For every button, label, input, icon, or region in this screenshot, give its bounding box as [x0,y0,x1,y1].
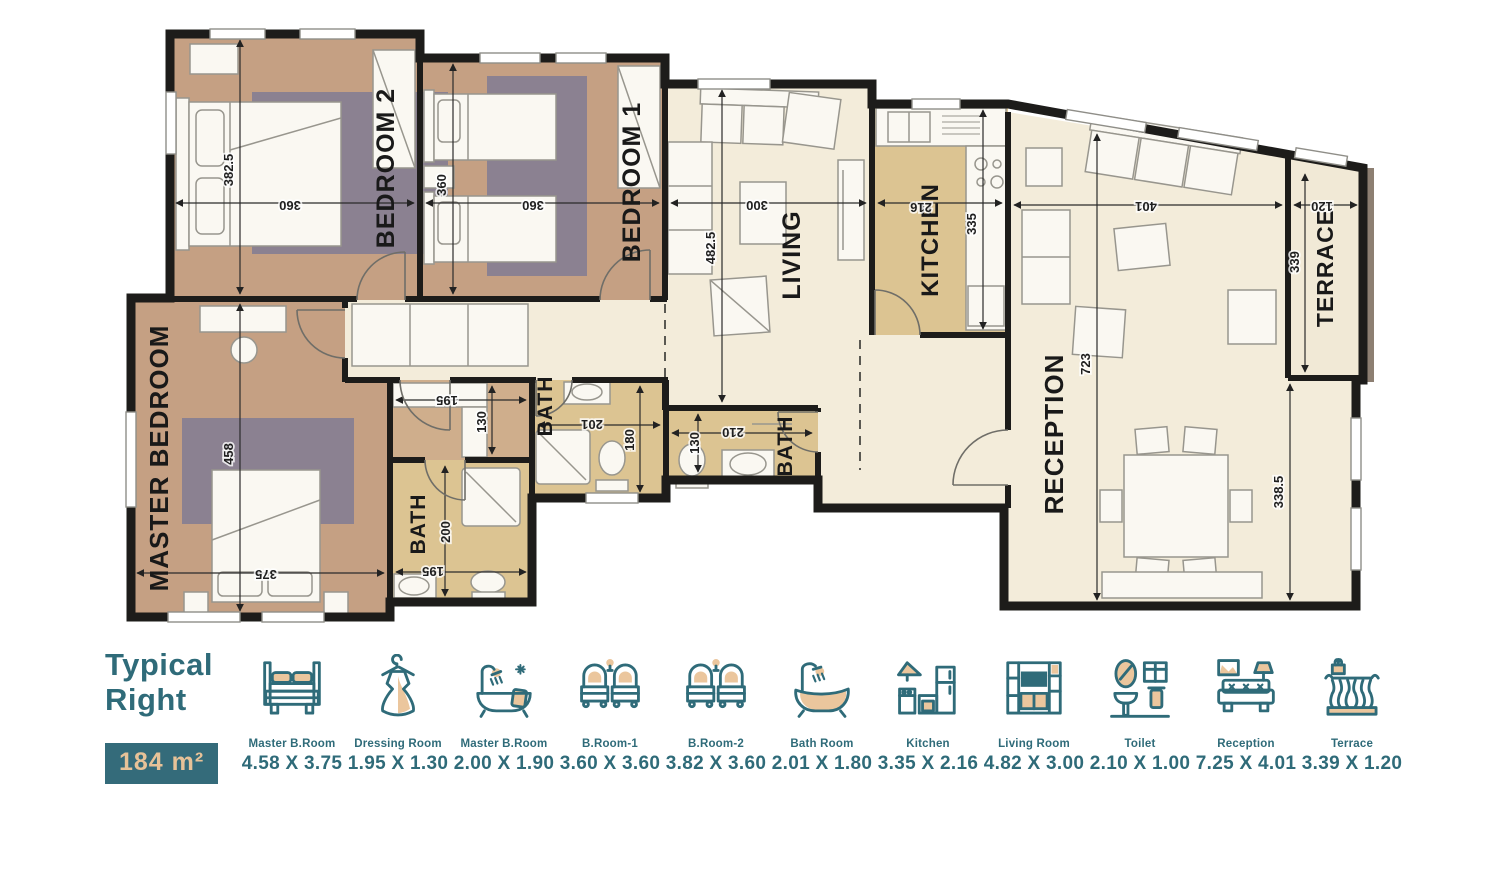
legend-name: B.Room-1 [557,738,663,750]
legend-item-bathroom: Bath Room 2.01 X 1.80 [769,640,875,775]
dress-icon [345,640,451,724]
dim-label: 375 [255,567,277,582]
legend-name: Living Room [981,738,1087,750]
dim-label: 335 [964,213,979,235]
legend-item-living: Living Room 4.82 X 3.00 [981,640,1087,775]
legend-size: 4.58 X 3.75 [239,753,345,775]
dim-label: 339 [1287,251,1302,273]
legend-size: 4.82 X 3.00 [981,753,1087,775]
legend-name: Kitchen [875,738,981,750]
legend-size: 3.39 X 1.20 [1299,753,1405,775]
legend-name: Terrace [1299,738,1405,750]
bathtub-shower-icon [451,640,557,724]
dim-label: 458 [221,443,236,465]
page-title-line1: Typical [105,648,237,683]
room-label-bath1: BATH [534,376,557,437]
legend-item-terrace: Terrace 3.39 X 1.20 [1299,640,1405,775]
room-label-master-bedroom: MASTER BEDROOM [144,325,174,592]
dim-label: 360 [279,198,301,213]
legend-name: Bath Room [769,738,875,750]
dim-label: 482.5 [703,232,718,265]
terrace-icon [1299,640,1405,724]
room-label-bedroom2: BEDROOM 2 [372,88,400,248]
kitchen-icon [875,640,981,724]
dim-label: 195 [422,564,444,579]
vanity-icon [1087,640,1193,724]
sofa-icon [1193,640,1299,724]
dim-label: 180 [622,429,637,451]
room-label-reception: RECEPTION [1039,354,1069,515]
legend-item-master-bedroom: Master B.Room 4.58 X 3.75 [239,640,345,775]
dim-label: 401 [1135,199,1157,214]
sink-bath2 [722,450,774,478]
stool-master [231,337,257,363]
twin-beds-icon [663,640,769,724]
dim-label: 382.5 [221,154,236,187]
legend-size: 2.01 X 1.80 [769,753,875,775]
dim-label: 360 [434,174,449,196]
armchair-reception-1 [1072,306,1125,357]
legend-name: Toilet [1087,738,1193,750]
legend-item-reception: Reception 7.25 X 4.01 [1193,640,1299,775]
sofa-living [699,88,841,149]
legend-item-dressing: Dressing Room 1.95 X 1.30 [345,640,451,775]
dim-label: 120 [1311,199,1333,214]
dim-label: 201 [581,417,603,432]
kitchen-counter-top [876,108,1006,146]
tv-unit-living [838,160,864,260]
legend-item-kitchen: Kitchen 3.35 X 2.16 [875,640,981,775]
hall-closet [352,304,528,366]
bathtub-icon [769,640,875,724]
room-label-bedroom1: BEDROOM 1 [618,102,646,262]
area-badge: 184 m² [105,743,218,784]
legend-size: 2.00 X 1.90 [451,753,557,775]
footer: Typical Right 184 m² Master B.Room 4.58 … [0,630,1500,876]
dim-label: 338.5 [1271,476,1286,509]
dresser-master [200,306,286,332]
legend-item-broom2: B.Room-2 3.82 X 3.60 [663,640,769,775]
dim-label: 130 [687,432,702,454]
legend-size: 1.95 X 1.30 [345,753,451,775]
dim-label: 195 [436,393,458,408]
legend-name: Dressing Room [345,738,451,750]
armchair-reception-2 [1228,290,1276,344]
double-bed-icon [239,640,345,724]
room-label-terrace: TERRACE [1312,209,1338,327]
shower-master [462,468,520,526]
dim-label: 300 [746,198,768,213]
dim-label: 723 [1078,353,1093,375]
coffee-table-reception [1114,223,1170,270]
room-label-master-bath: BATH [407,494,430,555]
floor-plan-svg: BEDROOM 2 BEDROOM 1 LIVING KITCHEN RECEP… [0,0,1500,630]
legend-size: 2.10 X 1.00 [1087,753,1193,775]
twin-bed-1 [424,90,556,162]
legend-name: B.Room-2 [663,738,769,750]
sideboard-reception [1102,572,1262,598]
bed-double-bedroom2 [176,98,341,250]
legend-size: 7.25 X 4.01 [1193,753,1299,775]
toilet-master [471,571,505,601]
dim-label: 200 [438,521,453,543]
kitchen-counter-right [966,146,1006,330]
dim-label: 216 [910,200,932,215]
dim-label: 130 [474,411,489,433]
legend-item-master-bath: Master B.Room 2.00 X 1.90 [451,640,557,775]
title-block: Typical Right 184 m² [105,630,237,784]
page-title-line2: Right [105,683,237,718]
legend-item-broom1: B.Room-1 3.60 X 3.60 [557,640,663,775]
legend-name: Master B.Room [451,738,557,750]
legend-item-toilet: Toilet 2.10 X 1.00 [1087,640,1193,775]
legend-size: 3.60 X 3.60 [557,753,663,775]
legend-size: 3.35 X 2.16 [875,753,981,775]
legend-name: Master B.Room [239,738,345,750]
shower-bath1 [536,430,590,484]
dim-label: 360 [522,198,544,213]
side-table-reception [1026,148,1062,186]
twin-beds-icon [557,640,663,724]
dim-label: 210 [722,425,744,440]
loveseat-reception [1022,210,1070,304]
legend: Master B.Room 4.58 X 3.75 Dressing Room … [239,630,1500,775]
living-room-icon [981,640,1087,724]
dresser-bedroom2 [190,44,238,74]
legend-size: 3.82 X 3.60 [663,753,769,775]
room-label-bath2: BATH [774,416,797,477]
armchair-living [710,276,770,336]
legend-name: Reception [1193,738,1299,750]
room-label-living: LIVING [778,210,806,299]
floor-plan: BEDROOM 2 BEDROOM 1 LIVING KITCHEN RECEP… [0,0,1500,630]
